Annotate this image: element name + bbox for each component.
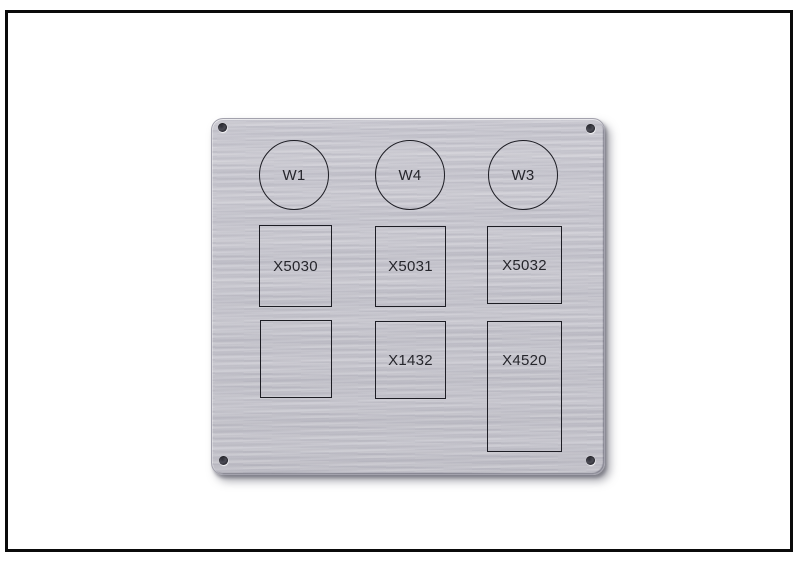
circle-label: W3 [511,167,534,184]
rect-cutout-x5032: X5032 [487,226,562,304]
circle-cutout-w4: W4 [375,140,445,210]
rect-label: X5030 [273,258,318,275]
rect-cutout-x4520: X4520 [487,321,562,452]
rect-cutout-x5030: X5030 [259,225,332,307]
metal-label-plate: W1 W4 W3 X5030 X5031 X5032 X1432 [211,118,605,475]
rect-label: X5032 [502,257,547,274]
picture-border-frame: W1 W4 W3 X5030 X5031 X5032 X1432 [5,10,793,552]
circle-cutout-w1: W1 [259,140,329,210]
circle-label: W4 [398,167,421,184]
circle-label: W1 [282,167,305,184]
rect-cutout-x5031: X5031 [375,226,446,307]
circle-cutout-w3: W3 [488,140,558,210]
rect-label: X5031 [388,258,433,275]
rect-label: X4520 [502,352,547,369]
rect-cutout-x1432: X1432 [375,321,446,399]
mounting-hole-bottom-left [219,456,228,465]
rect-cutout-blank [260,320,332,398]
mounting-hole-bottom-right [586,456,595,465]
rect-label: X1432 [388,352,433,369]
image-canvas: W1 W4 W3 X5030 X5031 X5032 X1432 [0,0,800,565]
mounting-hole-top-right [586,124,595,133]
mounting-hole-top-left [218,123,227,132]
